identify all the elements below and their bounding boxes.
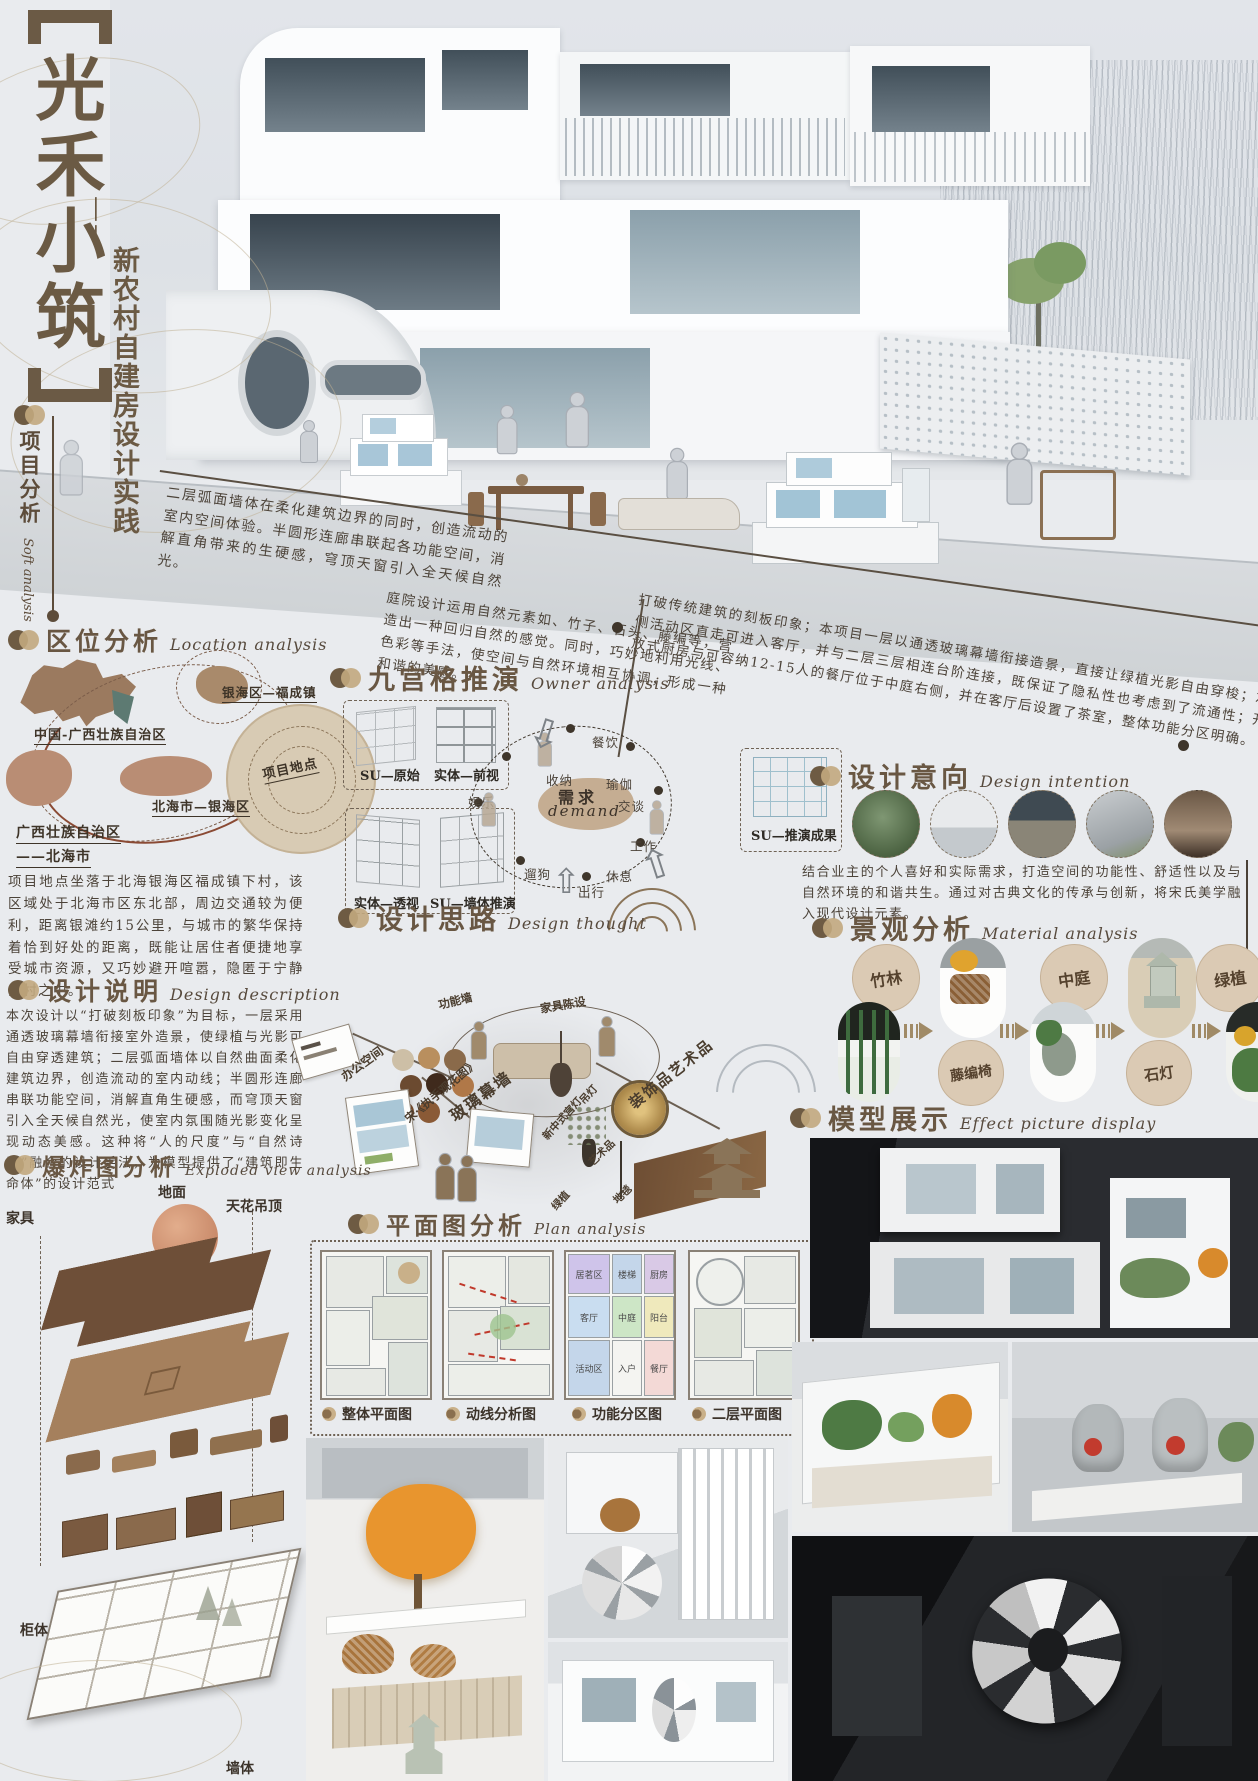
intention-photo-white-building: [930, 790, 998, 858]
floor-plan-overall: [320, 1250, 432, 1400]
material-label-text: 绿植: [1212, 964, 1247, 992]
pagoda-icon: [694, 1138, 760, 1208]
intention-photo-chinese-house: [1008, 790, 1076, 858]
section-ninegrid: 九宫格推演 Owner analysis: [330, 658, 669, 697]
su-label: SU—推演成果: [751, 825, 837, 844]
figure-silhouette: [666, 448, 685, 498]
room-label: 客厅: [580, 1311, 598, 1324]
section-title-zh: 模型展示: [828, 1098, 952, 1137]
exploded-leader-dashed: [40, 1236, 41, 1566]
demand-node-dot: [626, 742, 635, 751]
su-cube-perspective: [356, 814, 420, 888]
section-title-en: Design intention: [980, 772, 1130, 791]
material-photo-rattan-chair: [940, 938, 1006, 1038]
plan-legend-zoning: 功能分区图: [572, 1404, 662, 1424]
room-cell: 楼梯: [612, 1254, 642, 1294]
section-bullet-icon: [348, 1213, 378, 1235]
floor-plan-second: [688, 1250, 800, 1400]
section-intention: 设计意向 Design intention: [810, 756, 1130, 795]
legend-dot-icon: [572, 1407, 586, 1421]
section-thought: 设计思路 Design thought: [338, 898, 647, 937]
umbrella-figure-sketch: [60, 440, 81, 495]
section-title-zh: 设计说明: [46, 972, 162, 1008]
section-bullet-icon: [4, 1154, 34, 1176]
material-photo-greenery: [1226, 1002, 1258, 1102]
section-title-en: Plan analysis: [534, 1220, 646, 1238]
material-photo-bamboo: [838, 1002, 900, 1102]
legend-dot-icon: [446, 1407, 460, 1421]
demand-node-dot: [502, 752, 511, 761]
section-title-zh: 九宫格推演: [368, 658, 523, 697]
note-rule-dot: [1178, 740, 1189, 751]
section-bullet-icon: [8, 629, 38, 651]
room-cell: 阳台: [644, 1296, 674, 1338]
room-label: 阳台: [650, 1311, 668, 1324]
plan-legend-overall: 整体平面图: [322, 1404, 412, 1424]
bench-sketch: [618, 498, 740, 530]
demand-label: 休息: [606, 866, 633, 885]
poster-subtitle: 新农村自建房设计实践: [104, 246, 143, 546]
exploded-label-cabinet: 柜体: [20, 1620, 48, 1640]
material-photo-rock: [1030, 1002, 1096, 1102]
section-bullet-icon: [812, 917, 842, 939]
material-label-text: 竹林: [868, 964, 903, 992]
model-photo-white-facade: [548, 1642, 788, 1781]
plan-legend-second: 二层平面图: [692, 1404, 782, 1424]
window: [265, 58, 425, 132]
room-label: 楼梯: [618, 1268, 636, 1281]
demand-label: 遛狗: [524, 864, 551, 883]
room-cell: 客厅: [568, 1296, 610, 1338]
flow-arrow-up-icon: ⇧: [552, 862, 581, 902]
section-exploded: 爆炸图分析 Exploded view analysis: [4, 1148, 372, 1182]
room-label: 入户: [618, 1362, 636, 1375]
legend-label: 二层平面图: [712, 1404, 782, 1424]
poster-board: 光禾小筑 —— 新农村自建房设计实践 项目分析 Soft analysis 二层…: [0, 0, 1258, 1781]
figure-silhouette: [598, 1016, 613, 1056]
room-cell: 入户: [612, 1340, 642, 1396]
demand-label: 餐饮: [592, 732, 619, 751]
pine-tree-sketch: [196, 1586, 220, 1620]
map-label-guangxi-2: ——北海市: [16, 846, 91, 868]
window: [580, 64, 730, 116]
room-cell: 餐厅: [644, 1340, 674, 1396]
building-sketch-frame: [466, 1108, 534, 1167]
material-label-text: 藤编椅: [949, 1060, 993, 1086]
model-photo-terrace-tree: [306, 1438, 544, 1781]
arrow-right-icon: [1096, 1022, 1130, 1040]
section-bullet-icon: [330, 667, 360, 689]
map-label-beihai: 北海市—银海区: [152, 796, 250, 817]
side-rule-line: [52, 416, 54, 612]
demand-label: 交谈: [618, 796, 645, 815]
model-house-small-right: [752, 448, 937, 566]
model-photo-facade: [810, 1138, 1258, 1338]
window: [442, 50, 528, 110]
beihai-blob: [120, 756, 212, 796]
model-photo-courtyard: [792, 1342, 1008, 1532]
legend-label: 功能分区图: [592, 1404, 662, 1424]
section-model: 模型展示 Effect picture display: [790, 1098, 1156, 1137]
subtitle-dashes: ——: [82, 196, 112, 252]
section-bullet-icon: [14, 404, 44, 426]
demand-center-en: demand: [548, 802, 621, 820]
model-photo-spiral-stair-dark: [792, 1536, 1258, 1781]
thought-diagram: 办公空间 功能墙 家具陈设 宋·《执手观花图》 玻璃幕墙 新中式宫灯 吊灯 装饰…: [288, 935, 748, 1235]
legend-label: 整体平面图: [342, 1404, 412, 1424]
exploded-label-ceiling: 天花吊顶: [226, 1196, 282, 1216]
figure-silhouette: [1006, 443, 1029, 504]
demand-node-dot: [582, 872, 591, 881]
figure-silhouette: [566, 392, 587, 447]
material-photo-stone-lantern: [1128, 938, 1196, 1038]
section-title-zh: 爆炸图分析: [42, 1148, 177, 1182]
su-label: SU—原始: [360, 765, 420, 784]
arrow-right-icon: [904, 1022, 938, 1040]
intention-photo-interior: [1164, 790, 1232, 858]
side-rule-dot: [47, 610, 59, 622]
model-house-small-left: [340, 412, 460, 504]
room-label: 餐厅: [650, 1362, 668, 1375]
arrow-right-icon: [1000, 1022, 1034, 1040]
lantern-cord: [560, 1031, 562, 1065]
section-title-zh: 平面图分析: [386, 1206, 526, 1241]
map-label-china: 中国-广西壮族自治区: [34, 724, 166, 745]
location-map: 银海区—福成镇 中国-广西壮族自治区 项目地点 北海市—银海区 广西壮族自治区 …: [0, 650, 320, 865]
room-cell: 居茗区: [568, 1254, 610, 1294]
roof-railing: [854, 132, 1086, 182]
demand-node-dot: [566, 724, 575, 733]
section-bullet-icon: [790, 1107, 820, 1129]
section-title-zh: 设计意向: [848, 756, 972, 795]
room-label: 中庭: [618, 1311, 636, 1324]
room-cell: 活动区: [568, 1340, 610, 1396]
room-label: 居茗区: [575, 1268, 602, 1281]
room-cell: 中庭: [612, 1296, 642, 1338]
map-label-guangxi-1: 广西壮族自治区: [16, 822, 121, 844]
section-bullet-icon: [8, 979, 38, 1001]
figure-silhouette: [497, 405, 515, 453]
title-bracket-top-icon: [28, 10, 112, 44]
room-label: 活动区: [575, 1362, 602, 1375]
chair-sketch: [1040, 470, 1116, 540]
legend-dot-icon: [322, 1407, 336, 1421]
demand-node-dot: [654, 786, 663, 795]
floor-plan-zoning: 居茗区 楼梯 厨房 客厅 中庭 阳台 活动区 入户 餐厅: [564, 1250, 676, 1400]
intention-photo-bonsai: [852, 790, 920, 858]
figure-silhouette: [435, 1153, 453, 1199]
section-title-en: Owner analysis: [531, 674, 669, 693]
note-rule-dot: [612, 622, 623, 633]
room-label: 厨房: [650, 1268, 668, 1281]
demand-label: 收纳: [546, 770, 573, 789]
exploded-label-wall: 墙体: [226, 1758, 254, 1778]
demand-label: 瑜伽: [606, 774, 633, 793]
figure-silhouette: [457, 1155, 475, 1201]
figure-silhouette: [650, 800, 663, 834]
section-bullet-icon: [810, 765, 840, 787]
arrow-right-icon: [1192, 1022, 1226, 1040]
su-cube-original: [356, 706, 416, 766]
side-tab-zh: 项目分析: [14, 430, 44, 530]
material-label-text: 石灯: [1143, 1061, 1176, 1086]
pine-tree-sketch: [222, 1598, 242, 1626]
section-plan: 平面图分析 Plan analysis: [348, 1206, 646, 1241]
section-bullet-icon: [338, 907, 368, 929]
legend-dot-icon: [692, 1407, 706, 1421]
model-photo-stair-interior: [548, 1438, 788, 1638]
section-title-en: Effect picture display: [960, 1114, 1156, 1133]
section-title-en: Design thought: [508, 914, 647, 933]
section-title-zh: 景观分析: [850, 908, 974, 947]
legend-label: 动线分析图: [466, 1404, 536, 1424]
room-cell: 厨房: [644, 1254, 674, 1294]
plan-legend-circulation: 动线分析图: [446, 1404, 536, 1424]
glass-wall: [630, 210, 860, 314]
window: [872, 66, 990, 132]
balcony-railing: [565, 118, 845, 176]
section-title-zh: 设计思路: [376, 898, 500, 937]
title-bracket-bottom-icon: [28, 368, 112, 402]
map-label-yinhai: 银海区—福成镇: [222, 682, 317, 703]
model-photo-stone-lions: [1012, 1342, 1258, 1532]
intention-photo-gray-building: [1086, 790, 1154, 858]
exploded-label-ground: 地面: [158, 1182, 186, 1202]
exploded-label-furniture: 家具: [6, 1208, 34, 1228]
figure-silhouette: [482, 792, 495, 826]
section-title-en: Exploded view analysis: [185, 1163, 372, 1179]
hanging-lantern-sketch: [550, 1063, 572, 1097]
section-title-en: Material analysis: [982, 924, 1138, 943]
floor-plan-circulation: [442, 1250, 554, 1400]
material-label-text: 中庭: [1056, 964, 1091, 992]
